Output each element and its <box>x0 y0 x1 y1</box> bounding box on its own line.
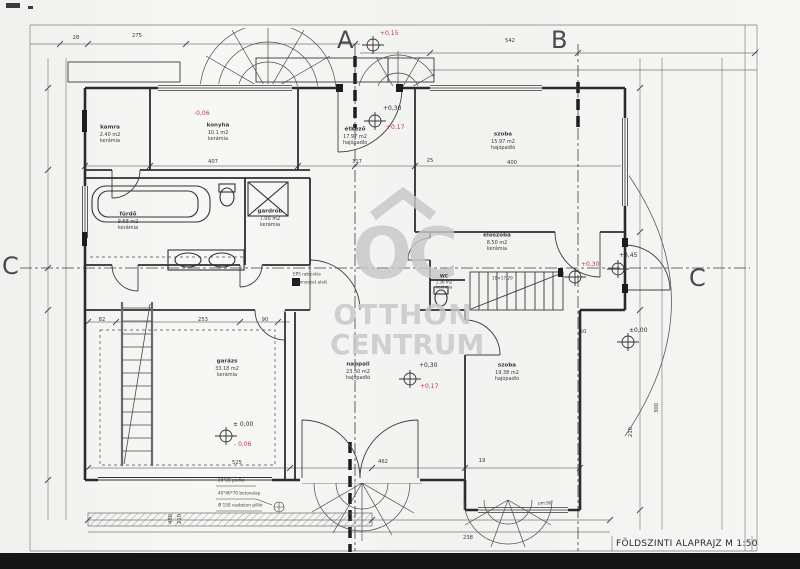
scan-speck <box>6 3 20 8</box>
room-name: garázs <box>217 358 238 364</box>
room-name: konyha <box>207 122 230 128</box>
room-floor: kerámia <box>85 138 135 144</box>
level-entrance: +0,15 <box>380 30 398 37</box>
level-hall-red: +0,30 <box>581 261 599 268</box>
room-label-furdo: fürdő 9.68 m2 kerámia <box>103 211 153 231</box>
room-label-konyha: konyha 10.1 m2 kerámia <box>193 122 243 142</box>
room-floor: hajópadló <box>330 140 380 146</box>
room-floor: kerámia <box>193 136 243 142</box>
level-right-zero: ±0,00 <box>629 327 647 334</box>
room-floor: kerámia <box>424 285 464 290</box>
parapet-note: pm:90 <box>538 501 551 506</box>
scan-speck <box>28 6 33 9</box>
room-floor: kerámia <box>103 225 153 231</box>
room-label-garazs: garázs 33.18 m2 kerámia <box>202 358 252 378</box>
grid-label-b: B <box>551 26 567 54</box>
dimension-text: 317 <box>340 159 375 165</box>
level-living-red: +0,17 <box>420 383 438 390</box>
room-label-szoba-also: szoba 19.38 m2 hajópadló <box>482 362 532 382</box>
dimension-text: 82 <box>85 317 120 323</box>
room-floor: kerámia <box>245 222 295 228</box>
dimension-text: 275 <box>120 33 155 39</box>
level-garage-red: - 0,06 <box>234 441 251 448</box>
room-label-nappali: nappali 23.50 m2 hajópadló <box>333 361 383 381</box>
dimension-text: 238 <box>451 535 486 541</box>
drawing-title: FÖLDSZINTI ALAPRAJZ M 1:50 <box>616 539 754 549</box>
room-name: étkező <box>345 126 366 132</box>
room-label-eloszoba: előszoba 8.50 m2 kerámia <box>472 232 522 252</box>
dimension-text: 407 <box>196 159 231 165</box>
room-floor: kerámia <box>202 372 252 378</box>
dimension-text: 462 <box>366 459 401 465</box>
level-dining-red: +0,17 <box>386 124 404 131</box>
level-garage-zero: ± 0,00 <box>233 421 253 428</box>
dimension-text: 525 <box>220 460 255 466</box>
construction-note: mennyezet alatt <box>293 280 327 285</box>
room-name: szoba <box>498 362 516 368</box>
room-name: gardrób <box>257 208 282 214</box>
room-name: előszoba <box>483 232 511 238</box>
construction-note: 20*20 padka <box>218 478 245 483</box>
dimension-text: 400 <box>495 160 530 166</box>
dimension-text: 300 <box>654 391 660 426</box>
dimension-text: 19 <box>465 458 500 464</box>
room-label-kamra: kamra 2.40 m2 kerámia <box>85 124 135 144</box>
dimension-text: 210 <box>177 502 183 537</box>
room-name: szoba <box>494 131 512 137</box>
dimension-text: 25 <box>413 158 448 164</box>
room-label-etkezo: étkező 17.97 m2 hajópadló <box>330 126 380 146</box>
level-kitchen: -0,06 <box>194 110 210 117</box>
dimension-text: 542 <box>493 38 528 44</box>
construction-note: 40*40*70 betonalap <box>218 491 260 496</box>
room-label-szoba-felso: szoba 15.97 m2 hajópadló <box>478 131 528 151</box>
room-floor: kerámia <box>472 246 522 252</box>
room-name: fürdő <box>120 211 137 217</box>
grid-label-a: A <box>337 26 353 54</box>
room-name: kamra <box>100 124 120 130</box>
level-living: +0,30 <box>419 362 437 369</box>
dimension-text: 210 <box>628 415 634 450</box>
construction-note: Ø 150 vasbeton pillér <box>218 503 263 508</box>
level-hall: +0,45 <box>619 252 637 259</box>
room-label-gardrob: gardrób 7.00 m2 kerámia <box>245 208 295 228</box>
dimension-text: 480 <box>168 502 174 537</box>
dimension-text: 50 <box>566 329 601 335</box>
level-dining: +0,30 <box>383 105 401 112</box>
room-floor: hajópadló <box>333 375 383 381</box>
room-label-wc: WC 1.36 m2 kerámia <box>424 274 464 290</box>
construction-note: EPS rabicolás <box>293 272 321 277</box>
label-layer: A B C C kamra 2.40 m2 kerámia konyha 10.… <box>0 0 800 569</box>
dimension-text: 28 <box>59 35 94 41</box>
grid-label-c-right: C <box>689 264 706 292</box>
dimension-text: 90 <box>248 317 283 323</box>
scan-black-bar <box>0 553 800 569</box>
grid-label-c-left: C <box>2 252 19 280</box>
scanned-floorplan-page: OC OTTHON CENTRUM <box>0 0 800 569</box>
room-name: nappali <box>346 361 369 367</box>
room-floor: hajópadló <box>478 145 528 151</box>
dimension-text: 253 <box>186 317 221 323</box>
room-floor: hajópadló <box>482 376 532 382</box>
room-name: WC <box>440 274 448 279</box>
stair-note: 18×17/29 <box>492 276 513 281</box>
